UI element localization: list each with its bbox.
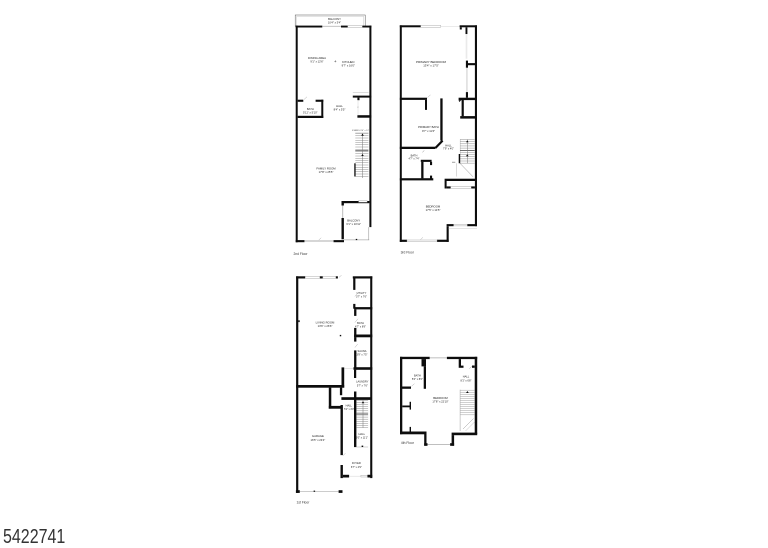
svg-text:LIVING ROOM: LIVING ROOM	[316, 321, 335, 325]
svg-text:13'4" x 17'5": 13'4" x 17'5"	[423, 63, 439, 67]
svg-text:HALL: HALL	[336, 104, 343, 108]
svg-text:1st Floor: 1st Floor	[297, 501, 311, 505]
svg-text:9'1" x 12'6": 9'1" x 12'6"	[310, 60, 323, 64]
svg-text:5'0" x 8'0": 5'0" x 8'0"	[412, 378, 423, 381]
svg-text:2: 2	[357, 107, 358, 109]
svg-text:BALCONY: BALCONY	[347, 218, 360, 222]
svg-text:BALCONY: BALCONY	[328, 17, 341, 21]
svg-text:7'9" x 4'0": 7'9" x 4'0"	[443, 148, 454, 151]
svg-text:8'1" x 6'8": 8'1" x 6'8"	[461, 379, 472, 382]
svg-text:STAIRS 3'0" x 12': STAIRS 3'0" x 12'	[352, 129, 370, 132]
svg-text:BATH: BATH	[307, 107, 314, 111]
svg-text:HALL: HALL	[346, 405, 353, 408]
svg-text:10'4" x 3'4": 10'4" x 3'4"	[328, 21, 341, 25]
svg-text:GARAGE: GARAGE	[312, 434, 324, 438]
svg-text:2nd Floor: 2nd Floor	[294, 252, 309, 256]
svg-text:3'7" x 7'6": 3'7" x 7'6"	[356, 295, 367, 298]
svg-text:5'11" x 5'10": 5'11" x 5'10"	[303, 111, 318, 115]
svg-text:17'5" x 14'5": 17'5" x 14'5"	[426, 208, 441, 212]
svg-text:LAUNDRY: LAUNDRY	[356, 380, 369, 384]
svg-text:8'4" x 5'5": 8'4" x 5'5"	[334, 107, 346, 111]
svg-text:BATH: BATH	[414, 373, 421, 377]
svg-text:4th Floor: 4th Floor	[401, 441, 415, 445]
svg-text:FOYER: FOYER	[352, 461, 361, 465]
svg-text:KITCHEN: KITCHEN	[342, 60, 354, 64]
svg-text:HALL: HALL	[463, 375, 470, 379]
svg-text:3rd Floor: 3rd Floor	[401, 251, 415, 255]
svg-text:BEDROOM: BEDROOM	[426, 204, 441, 208]
svg-text:9'7" x 16'0": 9'7" x 16'0"	[342, 64, 355, 68]
svg-text:5'7" x 7'6": 5'7" x 7'6"	[357, 384, 368, 387]
svg-text:3'9" x 7'5": 3'9" x 7'5"	[357, 354, 368, 357]
svg-text:17'8" x 25'5": 17'8" x 25'5"	[319, 170, 334, 174]
svg-text:BEDROOM: BEDROOM	[433, 396, 448, 400]
svg-text:13'6" x 26'6": 13'6" x 26'6"	[318, 324, 333, 328]
svg-text:FAMILY ROOM: FAMILY ROOM	[316, 167, 336, 171]
svg-text:BATH: BATH	[357, 321, 364, 325]
svg-text:6'7" x 4'9": 6'7" x 4'9"	[351, 466, 362, 469]
svg-text:4'7" x 8'9": 4'7" x 8'9"	[355, 326, 366, 329]
svg-text:17'8" x 22'10": 17'8" x 22'10"	[432, 400, 448, 404]
svg-text:5'1" x 4'0": 5'1" x 4'0"	[344, 409, 354, 411]
svg-text:UTILITY: UTILITY	[357, 291, 367, 295]
svg-text:6'1" x 10'11": 6'1" x 10'11"	[346, 222, 361, 226]
svg-text:5'0" x 11'1": 5'0" x 11'1"	[356, 437, 368, 440]
svg-text:PRIMARY BATH: PRIMARY BATH	[418, 125, 439, 129]
svg-text:SAUNA: SAUNA	[358, 349, 367, 353]
svg-text:16'5" x 23'4": 16'5" x 23'4"	[311, 438, 326, 442]
svg-text:9'7" x 11'6": 9'7" x 11'6"	[422, 129, 435, 133]
svg-text:DINING AREA: DINING AREA	[308, 56, 326, 60]
svg-text:4'7" x 7'4": 4'7" x 7'4"	[409, 158, 420, 161]
